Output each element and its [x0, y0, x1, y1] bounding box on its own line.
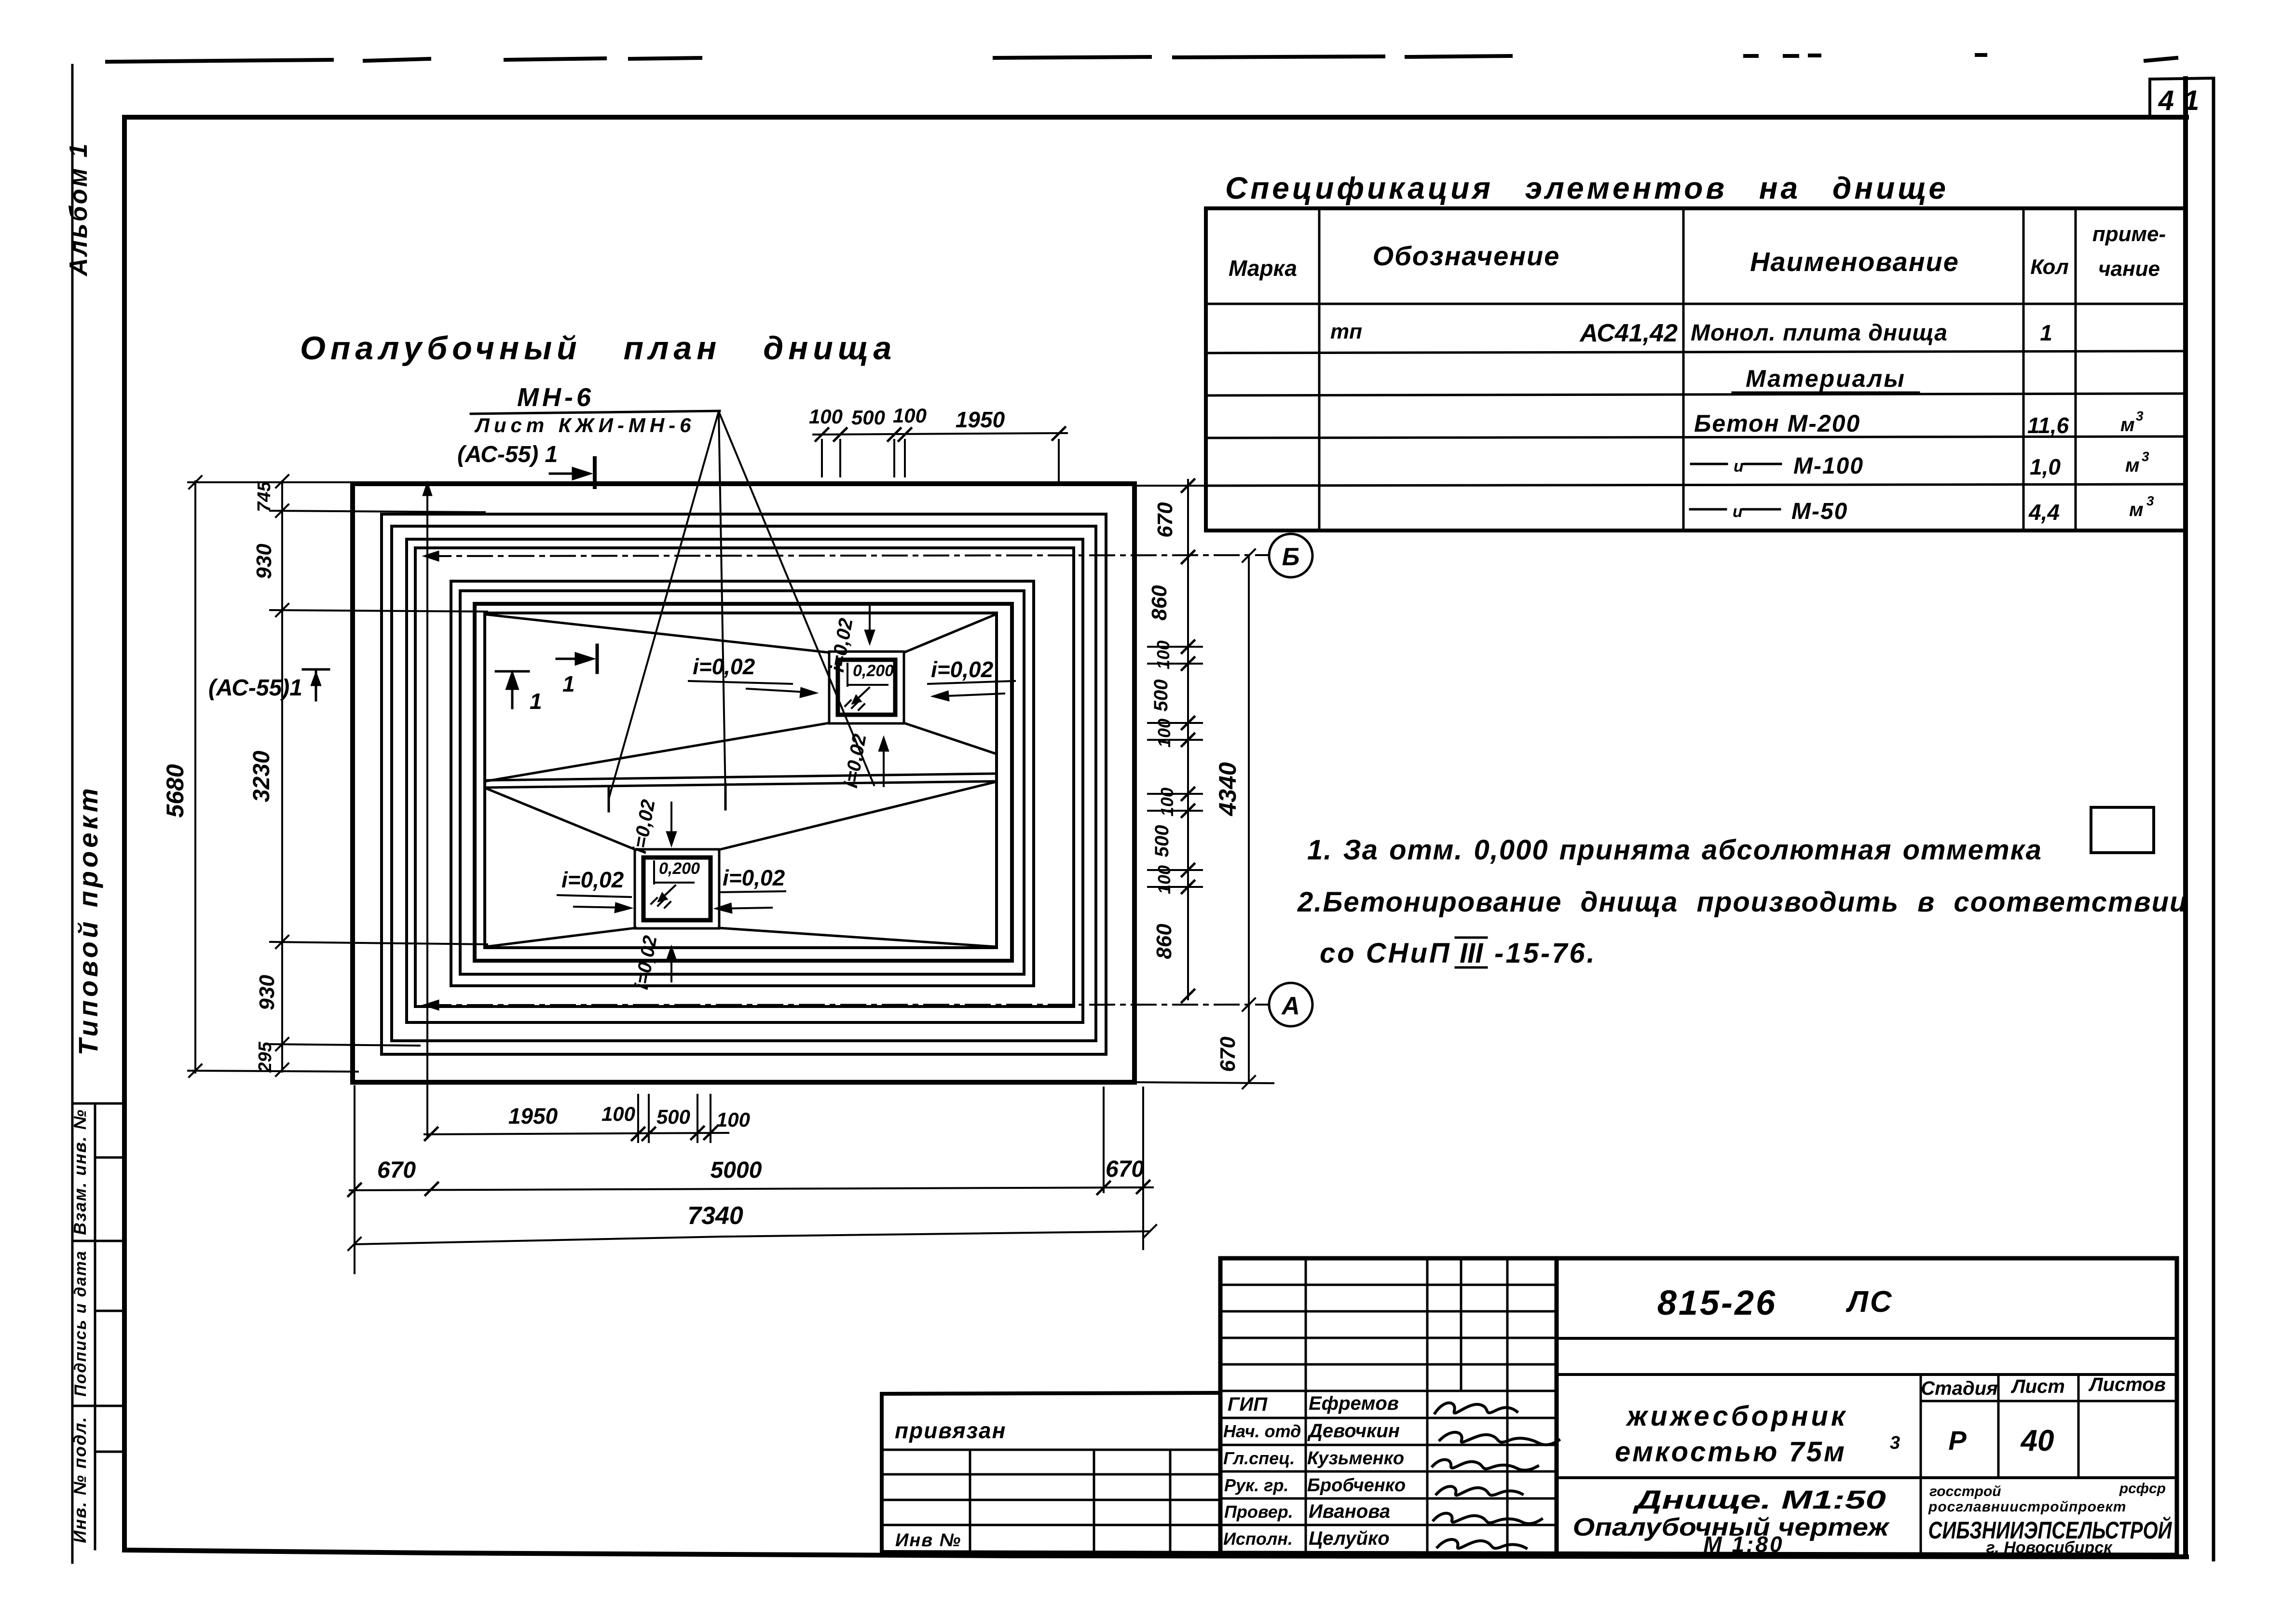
svg-text:100: 100	[1157, 788, 1177, 817]
svg-text:0,200: 0,200	[659, 859, 700, 878]
svg-text:Кол: Кол	[2030, 255, 2069, 279]
svg-text:Инв. № подл.: Инв. № подл.	[70, 1416, 90, 1543]
svg-text:3230: 3230	[249, 750, 274, 802]
svg-text:Р: Р	[1948, 1425, 1967, 1456]
svg-text:2.Бетонирование днища произв: 2.Бетонирование днища производить в соот…	[1297, 886, 2187, 918]
svg-text:Днище. М1:50: Днище. М1:50	[1632, 1485, 1886, 1514]
svg-text:1. За отм. 0,000 принята аб: 1. За отм. 0,000 принята абсолютная отме…	[1307, 834, 2042, 866]
svg-text:(АС-55)1: (АС-55)1	[208, 675, 302, 701]
svg-text:Ефремов: Ефремов	[1309, 1393, 1399, 1414]
svg-text:М 1:80: М 1:80	[1703, 1532, 1784, 1557]
svg-text:и: и	[1733, 503, 1743, 521]
svg-text:930: 930	[252, 544, 276, 579]
svg-text:i=0,02: i=0,02	[931, 657, 994, 682]
svg-text:500: 500	[851, 406, 885, 429]
svg-text:Провер.: Провер.	[1224, 1502, 1293, 1522]
svg-text:4340: 4340	[1214, 762, 1241, 816]
svg-text:670: 670	[377, 1157, 416, 1183]
svg-text:100: 100	[1154, 719, 1174, 748]
svg-text:670: 670	[1153, 502, 1177, 538]
svg-text:3: 3	[1890, 1433, 1900, 1453]
svg-text:Листов: Листов	[2088, 1374, 2166, 1395]
svg-text:i=0,02: i=0,02	[561, 867, 624, 892]
svg-text:1950: 1950	[956, 407, 1005, 432]
svg-text:Стадия: Стадия	[1921, 1378, 1997, 1399]
svg-text:емкостью 75м: емкостью 75м	[1615, 1436, 1846, 1468]
svg-text:III: III	[1460, 938, 1484, 969]
svg-text:1: 1	[2040, 320, 2052, 345]
svg-text:ГИП: ГИП	[1228, 1394, 1268, 1415]
svg-text:жижесборник: жижесборник	[1626, 1401, 1848, 1432]
svg-text:м: м	[2120, 414, 2135, 436]
svg-text:Лист КЖИ-МН-6: Лист КЖИ-МН-6	[474, 414, 696, 436]
svg-text:М-100: М-100	[1793, 453, 1864, 479]
svg-text:815-26: 815-26	[1657, 1284, 1777, 1322]
svg-text:3: 3	[2146, 493, 2154, 508]
svg-text:4,4: 4,4	[2028, 500, 2060, 525]
svg-text:М-50: М-50	[1791, 499, 1848, 524]
svg-text:40: 40	[2020, 1424, 2054, 1457]
svg-text:Марка: Марка	[1229, 256, 1297, 281]
svg-text:930: 930	[255, 975, 279, 1010]
svg-text:860: 860	[1152, 924, 1176, 959]
svg-text:Иванова: Иванова	[1309, 1501, 1390, 1522]
svg-text:295: 295	[255, 1041, 275, 1073]
svg-text:г. Новосибирск: г. Новосибирск	[1986, 1538, 2113, 1557]
svg-text:Лист: Лист	[2010, 1376, 2065, 1397]
svg-text:Спецификация элементов на д: Спецификация элементов на днище	[1225, 171, 1949, 205]
svg-text:Бетон М-200: Бетон М-200	[1694, 410, 1860, 437]
svg-text:100: 100	[601, 1102, 635, 1125]
svg-text:i=0,02: i=0,02	[723, 865, 785, 890]
svg-text:со СНиП: со СНиП	[1320, 938, 1451, 969]
svg-text:Подпись и дата: Подпись и дата	[71, 1250, 90, 1397]
svg-text:Кузьменко: Кузьменко	[1307, 1448, 1404, 1469]
svg-text:670: 670	[1216, 1036, 1240, 1072]
svg-text:Альбом 1: Альбом 1	[65, 142, 93, 277]
svg-text:100: 100	[809, 405, 843, 428]
svg-text:500: 500	[1151, 825, 1173, 857]
svg-text:100: 100	[893, 404, 927, 427]
svg-text:Монол. плита днища: Монол. плита днища	[1691, 320, 1948, 346]
svg-text:Гл.спец.: Гл.спец.	[1223, 1448, 1295, 1468]
svg-text:0,200: 0,200	[853, 662, 894, 680]
svg-text:3: 3	[2136, 408, 2144, 423]
svg-text:(АС-55) 1: (АС-55) 1	[457, 442, 558, 467]
svg-text:Целуйко: Целуйко	[1309, 1528, 1390, 1549]
svg-text:Инв №: Инв №	[895, 1530, 961, 1551]
svg-text:3: 3	[2142, 449, 2149, 464]
svg-text:670: 670	[1106, 1157, 1144, 1182]
svg-text:Опалубочный план днища: Опалубочный план днища	[300, 330, 896, 367]
svg-text:росглавниистройпроект: росглавниистройпроект	[1928, 1499, 2126, 1515]
svg-text:1,0: 1,0	[2030, 454, 2061, 479]
svg-text:745: 745	[254, 481, 274, 512]
svg-text:7340: 7340	[687, 1202, 743, 1230]
svg-text:рсфср: рсфср	[2119, 1481, 2166, 1497]
svg-text:тп: тп	[1330, 320, 1362, 343]
svg-text:1: 1	[530, 689, 542, 714]
svg-text:Бробченко: Бробченко	[1307, 1475, 1406, 1496]
svg-text:100: 100	[1154, 865, 1174, 894]
svg-text:500: 500	[1150, 680, 1172, 712]
svg-text:госстрой: госстрой	[1929, 1484, 2001, 1499]
svg-text:МН-6: МН-6	[517, 383, 594, 412]
svg-text:Обозначение: Обозначение	[1373, 241, 1560, 271]
svg-text:чание: чание	[2098, 257, 2160, 281]
svg-text:41: 41	[2158, 85, 2209, 116]
svg-text:Рук. гр.: Рук. гр.	[1224, 1475, 1289, 1495]
svg-text:5680: 5680	[162, 764, 189, 817]
svg-text:11,6: 11,6	[2027, 413, 2069, 438]
svg-text:Исполн.: Исполн.	[1223, 1529, 1293, 1549]
svg-text:Б: Б	[1282, 543, 1300, 571]
svg-text:860: 860	[1148, 585, 1171, 621]
svg-text:i=0,02: i=0,02	[693, 654, 755, 679]
svg-text:ЛС: ЛС	[1845, 1285, 1893, 1319]
svg-text:-15-76.: -15-76.	[1494, 938, 1597, 969]
svg-text:Наименование: Наименование	[1750, 246, 1959, 277]
svg-text:1950: 1950	[508, 1103, 558, 1129]
svg-text:Нач. отд: Нач. отд	[1223, 1421, 1301, 1441]
svg-text:500: 500	[656, 1105, 690, 1128]
svg-text:Материалы: Материалы	[1746, 365, 1906, 392]
svg-text:1: 1	[562, 671, 575, 696]
svg-text:м: м	[2129, 499, 2144, 520]
svg-text:100: 100	[1153, 640, 1173, 669]
svg-text:5000: 5000	[711, 1157, 762, 1183]
svg-text:Девочкин: Девочкин	[1307, 1420, 1400, 1442]
svg-text:АС41,42: АС41,42	[1579, 319, 1678, 347]
svg-text:м: м	[2125, 455, 2140, 476]
svg-text:А: А	[1281, 992, 1300, 1020]
svg-text:привязан: привязан	[895, 1418, 1006, 1443]
svg-text:Типовой проект: Типовой проект	[73, 785, 103, 1055]
svg-text:приме-: приме-	[2092, 222, 2166, 246]
svg-text:Взам. инв. №: Взам. инв. №	[70, 1109, 90, 1235]
svg-text:и: и	[1734, 457, 1744, 476]
svg-text:100: 100	[716, 1108, 750, 1131]
